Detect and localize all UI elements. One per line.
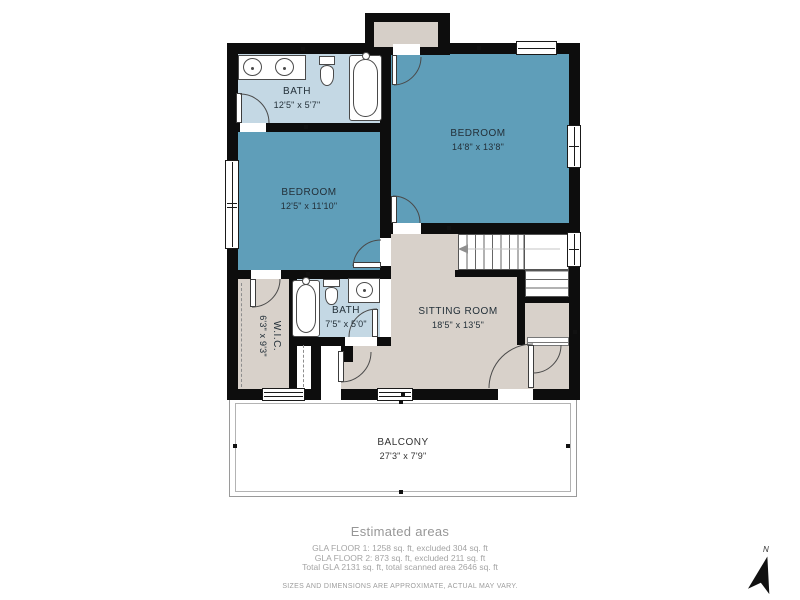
room-dims: 12'5" x 5'7" — [274, 100, 321, 110]
wall-stairs-bottom — [525, 297, 580, 303]
wall-stairs-mid — [455, 270, 525, 277]
door-gap-wic — [251, 270, 281, 279]
door-leaf-bedroom-right-top — [392, 55, 397, 85]
floor-plan-page: BATH 12'5" x 5'7" BEDROOM 14'8" x 13'8" … — [0, 0, 800, 600]
room-label-sitting-room: SITTING ROOM 18'5" x 13'5" — [418, 306, 497, 330]
door-gap-bedroom-right — [393, 223, 421, 234]
door-gap-bath-lower — [345, 337, 377, 346]
room-dims: 27'3" x 7'9" — [377, 451, 428, 461]
window-right-landing — [567, 232, 581, 267]
compass: N — [744, 545, 784, 597]
door-leaf-bedroom-left — [353, 262, 381, 268]
room-name: BATH — [325, 305, 367, 317]
room-name: BALCONY — [377, 437, 428, 449]
bathtub-basin — [296, 284, 316, 333]
room-label-bedroom-left: BEDROOM 12'5" x 11'10" — [281, 187, 338, 211]
door-gap-bath-upper — [240, 123, 266, 132]
tick-mark — [401, 392, 405, 396]
room-dims: 12'5" x 11'10" — [281, 201, 338, 211]
door-leaf-corridor — [338, 351, 344, 382]
tick-mark — [233, 444, 237, 448]
estimated-areas-block: Estimated areas GLA FLOOR 1: 1258 sq. ft… — [0, 524, 800, 590]
tick-mark — [304, 125, 308, 129]
door-gap-bedroom-left — [380, 238, 391, 266]
room-label-wic: W.I.C. 6'3" x 9'3" — [258, 315, 282, 357]
window-top-bedroom-right — [516, 41, 557, 55]
room-label-bedroom-right: BEDROOM 14'8" x 13'8" — [450, 128, 505, 152]
room-label-bath-upper: BATH 12'5" x 5'7" — [274, 86, 321, 110]
toilet-icon — [323, 279, 340, 287]
room-dims: 7'5" x 5'0" — [325, 319, 367, 329]
room-name: BATH — [274, 86, 321, 98]
closet-rail-dashes — [303, 345, 304, 387]
tick-mark — [573, 330, 577, 334]
toilet-bowl-icon — [320, 65, 334, 86]
gla-total-line: Total GLA 2131 sq. ft, total scanned are… — [0, 563, 800, 573]
door-leaf-bath-upper — [236, 93, 242, 123]
door-gap-balcony — [498, 389, 533, 400]
stairs-landing — [524, 234, 569, 270]
tick-mark — [306, 272, 310, 276]
sink-icon — [275, 58, 294, 76]
window-right-bedroom — [567, 125, 581, 168]
bathtub-basin — [353, 59, 378, 117]
wall-closet-right — [311, 343, 321, 389]
door-leaf-wic — [250, 279, 256, 307]
stairs-upper-flight — [458, 234, 525, 270]
tick-mark — [399, 400, 403, 404]
door-leaf-bath-lower — [372, 309, 378, 337]
disclaimer-text: SIZES AND DIMENSIONS ARE APPROXIMATE, AC… — [0, 583, 800, 590]
room-name: BEDROOM — [281, 187, 338, 199]
wall-right — [569, 43, 580, 400]
door-leaf-balcony — [528, 345, 534, 388]
room-dims: 18'5" x 13'5" — [418, 320, 497, 330]
room-label-bath-lower: BATH 7'5" x 5'0" — [325, 305, 367, 329]
chimney-opening — [393, 44, 420, 55]
door-gap-corridor — [321, 389, 341, 400]
window-left-bedroom — [225, 160, 239, 249]
tick-mark — [399, 490, 403, 494]
estimated-areas-title: Estimated areas — [0, 524, 800, 539]
room-dims: 6'3" x 9'3" — [258, 315, 268, 357]
wall-top-right — [450, 43, 580, 54]
wall-top-left — [227, 43, 365, 54]
tick-mark — [301, 47, 305, 51]
wall-stairs-left — [517, 270, 525, 345]
door-leaf-bedroom-right-bottom — [391, 196, 397, 223]
faucet-icon — [362, 52, 370, 60]
room-dims: 14'8" x 13'8" — [450, 142, 505, 152]
room-name: SITTING ROOM — [418, 306, 497, 318]
sink-icon — [356, 282, 373, 298]
wic-rail-dashes — [241, 283, 242, 387]
toilet-icon — [319, 56, 335, 65]
compass-north-label: N — [763, 545, 769, 554]
tick-mark — [566, 444, 570, 448]
faucet-icon — [302, 277, 310, 285]
toilet-bowl-icon — [325, 287, 338, 305]
tick-mark — [447, 226, 451, 230]
sink-icon — [243, 58, 262, 76]
room-name: BEDROOM — [450, 128, 505, 140]
tick-mark — [477, 46, 481, 50]
room-label-balcony: BALCONY 27'3" x 7'9" — [377, 437, 428, 461]
room-name: W.I.C. — [270, 315, 282, 357]
stairs-lower-flight — [525, 270, 569, 297]
